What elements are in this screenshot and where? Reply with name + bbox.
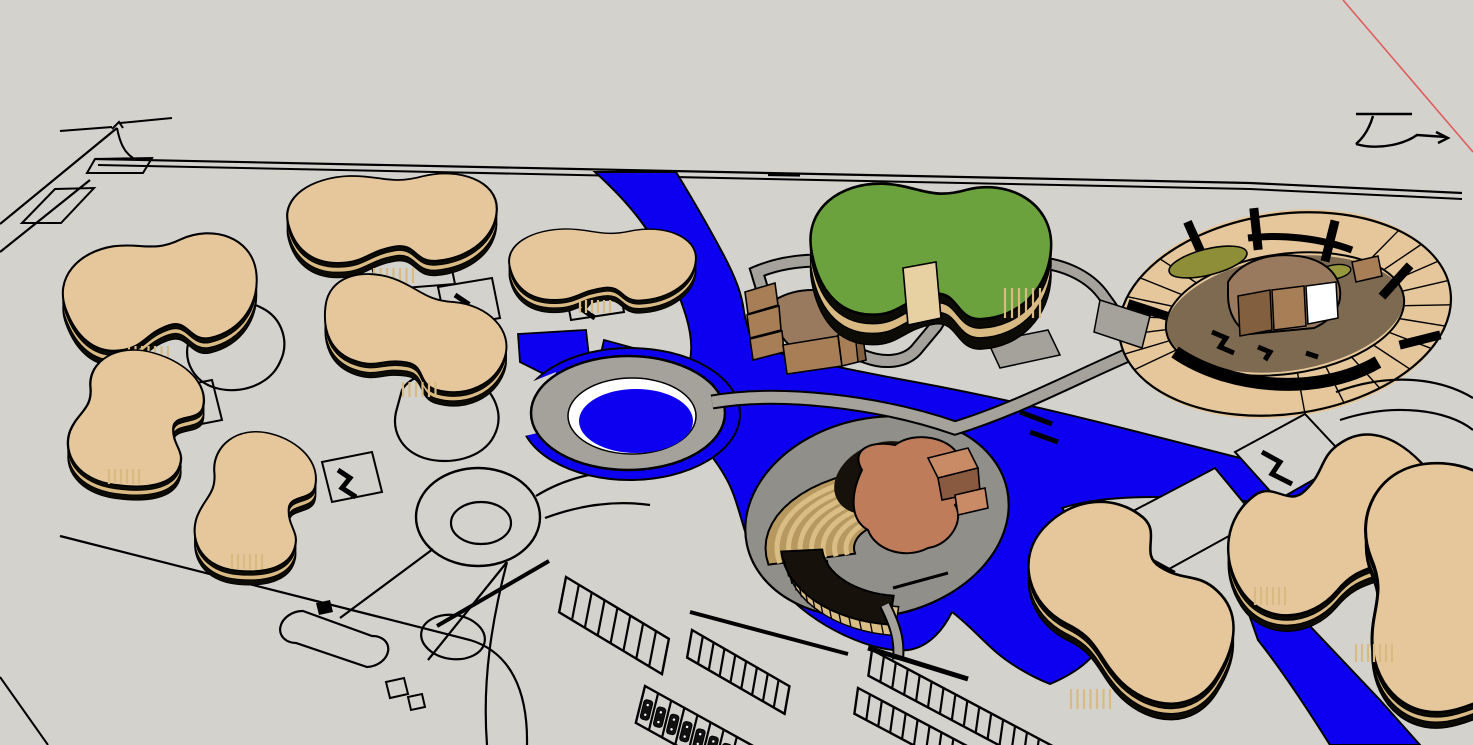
central-pavilion-face-1 — [1238, 290, 1272, 336]
model-viewport — [0, 0, 1473, 745]
green-building-notch-wall — [903, 262, 941, 325]
central-pavilion-face-2 — [1272, 286, 1306, 330]
ring-pool[interactable] — [516, 348, 740, 480]
pool-water[interactable] — [579, 389, 693, 453]
ring-facade-tick — [1404, 305, 1451, 306]
road-mark-2 — [768, 173, 800, 177]
central-pavilion-face-white — [1306, 282, 1338, 324]
site-model-canvas — [0, 0, 1473, 745]
